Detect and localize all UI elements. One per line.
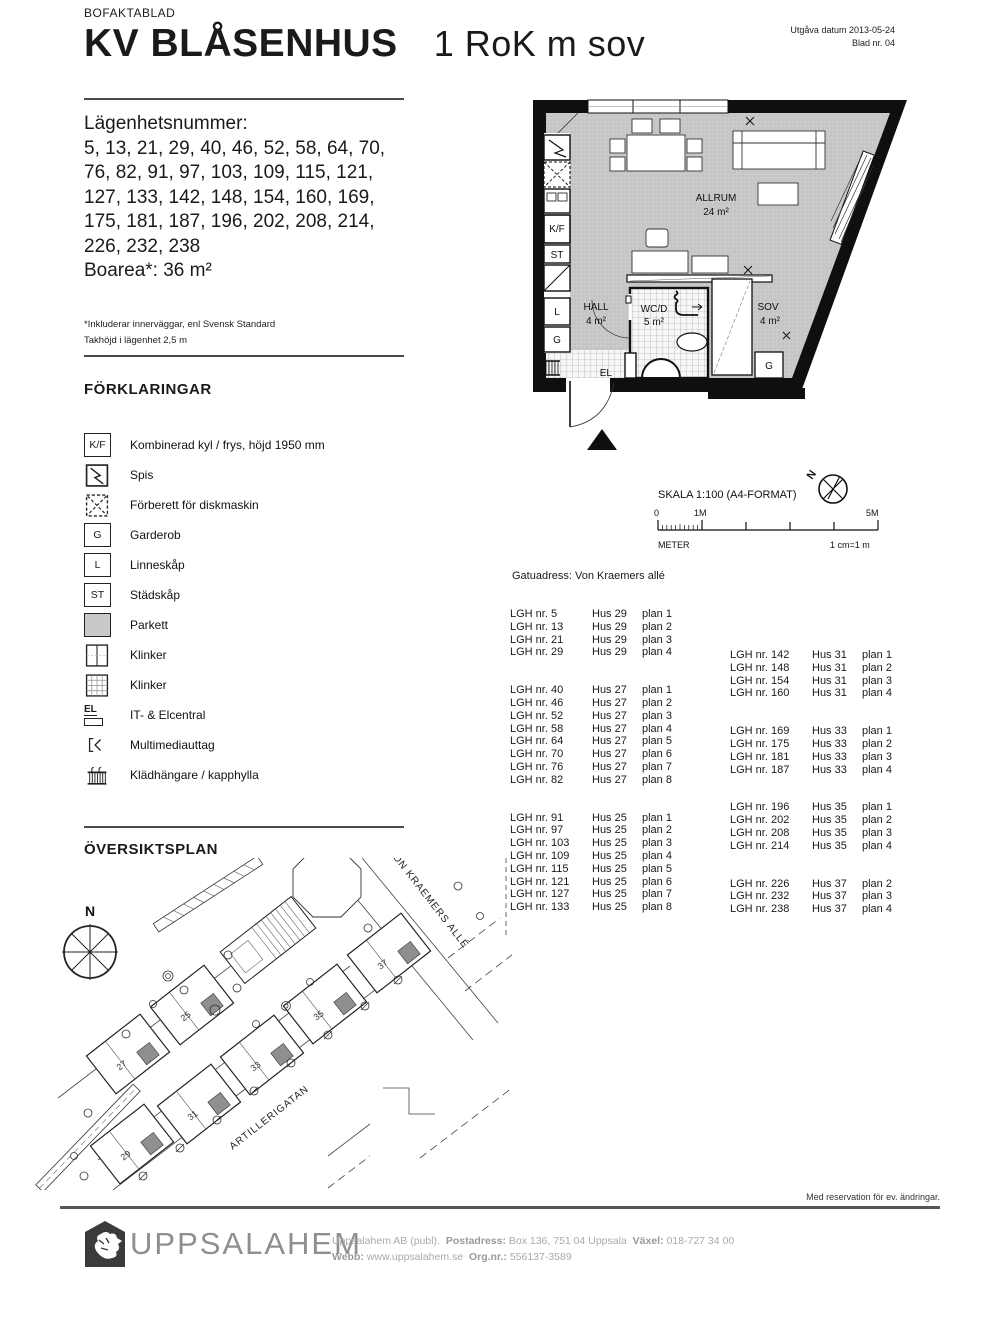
linen-closet-icon: L bbox=[84, 553, 130, 577]
unit-column-left: LGH nr. 5Hus 29plan 1LGH nr. 13Hus 29pla… bbox=[510, 608, 715, 941]
unit-row: LGH nr. 169Hus 33plan 1 bbox=[730, 725, 935, 738]
unit-row: LGH nr. 40Hus 27plan 1 bbox=[510, 684, 715, 697]
court-building bbox=[220, 897, 316, 984]
unit-lgh: LGH nr. 232 bbox=[730, 890, 812, 903]
unit-plan: plan 4 bbox=[642, 850, 702, 863]
unit-plan: plan 4 bbox=[862, 764, 922, 777]
unit-plan: plan 2 bbox=[862, 662, 922, 675]
unit-plan: plan 3 bbox=[642, 710, 702, 723]
unit-lgh: LGH nr. 154 bbox=[730, 675, 812, 688]
unit-plan: plan 8 bbox=[642, 774, 702, 787]
unit-hus: Hus 27 bbox=[592, 723, 642, 736]
unit-lgh: LGH nr. 21 bbox=[510, 634, 592, 647]
stove-symbol bbox=[544, 135, 570, 160]
unit-row: LGH nr. 142Hus 31plan 1 bbox=[730, 649, 935, 662]
unit-hus: Hus 33 bbox=[812, 738, 862, 751]
unit-hus: Hus 35 bbox=[812, 801, 862, 814]
doc-type-label: BOFAKTABLAD bbox=[84, 6, 175, 20]
unit-row: LGH nr. 187Hus 33plan 4 bbox=[730, 764, 935, 777]
unit-lgh: LGH nr. 196 bbox=[730, 801, 812, 814]
unit-plan: plan 1 bbox=[862, 725, 922, 738]
unit-plan: plan 3 bbox=[862, 827, 922, 840]
unit-hus: Hus 27 bbox=[592, 761, 642, 774]
unit-row: LGH nr. 109Hus 25plan 4 bbox=[510, 850, 715, 863]
unit-hus: Hus 33 bbox=[812, 751, 862, 764]
unit-plan: plan 6 bbox=[642, 748, 702, 761]
unit-row: LGH nr. 115Hus 25plan 5 bbox=[510, 863, 715, 876]
unit-row: LGH nr. 133Hus 25plan 8 bbox=[510, 901, 715, 914]
coat-hanger-icon bbox=[84, 763, 130, 788]
apartment-numbers-block: Lägenhetsnummer: 5, 13, 21, 29, 40, 46, … bbox=[84, 112, 414, 284]
cleaning-closet-icon: ST bbox=[84, 583, 130, 607]
street-address: Gatuadress: Von Kraemers allé bbox=[512, 570, 665, 582]
unit-lgh: LGH nr. 187 bbox=[730, 764, 812, 777]
unit-row: LGH nr. 238Hus 37plan 4 bbox=[730, 903, 935, 916]
unit-lgh: LGH nr. 148 bbox=[730, 662, 812, 675]
pergola-strip bbox=[153, 858, 262, 932]
title-row: KV BLÅSENHUS 1 RoK m sov bbox=[84, 22, 645, 66]
unit-lgh: LGH nr. 82 bbox=[510, 774, 592, 787]
sofa bbox=[733, 131, 825, 169]
unit-group: LGH nr. 142Hus 31plan 1LGH nr. 148Hus 31… bbox=[730, 649, 935, 700]
footnote-1: *Inkluderar innerväggar, enl Svensk Stan… bbox=[84, 317, 414, 333]
unit-hus: Hus 33 bbox=[812, 725, 862, 738]
svg-text:G: G bbox=[553, 335, 561, 346]
desk bbox=[632, 251, 688, 273]
unit-row: LGH nr. 103Hus 25plan 3 bbox=[510, 837, 715, 850]
unit-hus: Hus 25 bbox=[592, 850, 642, 863]
unit-lgh: LGH nr. 76 bbox=[510, 761, 592, 774]
unit-lgh: LGH nr. 208 bbox=[730, 827, 812, 840]
unit-row: LGH nr. 29Hus 29plan 4 bbox=[510, 646, 715, 659]
allrum-area: 24 m² bbox=[703, 207, 729, 218]
legend-row: Parkett bbox=[84, 610, 419, 640]
wc-area: 5 m² bbox=[644, 317, 665, 328]
unit-row: LGH nr. 196Hus 35plan 1 bbox=[730, 801, 935, 814]
unit-lgh: LGH nr. 52 bbox=[510, 710, 592, 723]
unit-hus: Hus 25 bbox=[592, 876, 642, 889]
wc-label: WC/D bbox=[641, 304, 668, 315]
building-37: 37 bbox=[347, 913, 430, 993]
unit-lgh: LGH nr. 109 bbox=[510, 850, 592, 863]
unit-lgh: LGH nr. 142 bbox=[730, 649, 812, 662]
ruler-labels: 0 1M 5M METER 1 cm=1 m bbox=[654, 508, 879, 550]
legend-row: Klinker bbox=[84, 640, 419, 670]
unit-hus: Hus 27 bbox=[592, 710, 642, 723]
ruler bbox=[658, 520, 878, 530]
svg-text:5M: 5M bbox=[866, 508, 879, 518]
unit-lgh: LGH nr. 175 bbox=[730, 738, 812, 751]
unit-row: LGH nr. 76Hus 27plan 7 bbox=[510, 761, 715, 774]
uppsalahem-logo-icon bbox=[84, 1220, 126, 1268]
stove-icon bbox=[84, 463, 130, 488]
unit-hus: Hus 35 bbox=[812, 840, 862, 853]
unit-plan: plan 1 bbox=[642, 684, 702, 697]
unit-lgh: LGH nr. 64 bbox=[510, 735, 592, 748]
unit-hus: Hus 37 bbox=[812, 890, 862, 903]
legend-list: K/F Kombinerad kyl / frys, höjd 1950 mm … bbox=[84, 430, 419, 790]
sov-area: 4 m² bbox=[760, 316, 781, 327]
sov-label: SOV bbox=[757, 302, 778, 313]
unit-plan: plan 4 bbox=[642, 723, 702, 736]
unit-row: LGH nr. 127Hus 25plan 7 bbox=[510, 888, 715, 901]
unit-plan: plan 3 bbox=[862, 890, 922, 903]
footer-divider bbox=[60, 1206, 940, 1209]
chair bbox=[610, 139, 625, 153]
compass-icon: N bbox=[805, 468, 847, 503]
unit-plan: plan 2 bbox=[642, 697, 702, 710]
entrance bbox=[566, 378, 617, 450]
shelf bbox=[692, 256, 728, 273]
unit-plan: plan 5 bbox=[642, 735, 702, 748]
unit-group: LGH nr. 40Hus 27plan 1LGH nr. 46Hus 27pl… bbox=[510, 684, 715, 786]
unit-group: LGH nr. 5Hus 29plan 1LGH nr. 13Hus 29pla… bbox=[510, 608, 715, 659]
unit-row: LGH nr. 82Hus 27plan 8 bbox=[510, 774, 715, 787]
issue-info: Utgåva datum 2013-05-24 Blad nr. 04 bbox=[650, 24, 895, 50]
unit-lgh: LGH nr. 5 bbox=[510, 608, 592, 621]
legend-row: L Linneskåp bbox=[84, 550, 419, 580]
unit-hus: Hus 27 bbox=[592, 748, 642, 761]
unit-plan: plan 1 bbox=[642, 812, 702, 825]
entrance-marker bbox=[587, 429, 617, 450]
unit-hus: Hus 33 bbox=[812, 764, 862, 777]
fridge-freezer-icon: K/F bbox=[84, 433, 130, 457]
unit-lgh: LGH nr. 70 bbox=[510, 748, 592, 761]
el-label: EL bbox=[600, 368, 613, 379]
page-title: KV BLÅSENHUS bbox=[84, 22, 398, 66]
unit-row: LGH nr. 64Hus 27plan 5 bbox=[510, 735, 715, 748]
unit-hus: Hus 27 bbox=[592, 684, 642, 697]
unit-lgh: LGH nr. 97 bbox=[510, 824, 592, 837]
unit-plan: plan 3 bbox=[642, 837, 702, 850]
unit-lgh: LGH nr. 46 bbox=[510, 697, 592, 710]
chair bbox=[687, 139, 702, 153]
unit-row: LGH nr. 181Hus 33plan 3 bbox=[730, 751, 935, 764]
unit-lgh: LGH nr. 29 bbox=[510, 646, 592, 659]
unit-table: LGH nr. 5Hus 29plan 1LGH nr. 13Hus 29pla… bbox=[510, 608, 935, 941]
washbasin bbox=[677, 333, 707, 351]
unit-row: LGH nr. 21Hus 29plan 3 bbox=[510, 634, 715, 647]
unit-row: LGH nr. 154Hus 31plan 3 bbox=[730, 675, 935, 688]
unit-plan: plan 5 bbox=[642, 863, 702, 876]
unit-plan: plan 6 bbox=[642, 876, 702, 889]
svg-text:1M: 1M bbox=[694, 508, 707, 518]
ratio-label: 1 cm=1 m bbox=[830, 540, 870, 550]
unit-lgh: LGH nr. 214 bbox=[730, 840, 812, 853]
unit-lgh: LGH nr. 226 bbox=[730, 878, 812, 891]
legend-row: Klädhängare / kapphylla bbox=[84, 760, 419, 790]
unit-hus: Hus 25 bbox=[592, 888, 642, 901]
el-central-icon: EL bbox=[84, 704, 130, 726]
unit-row: LGH nr. 46Hus 27plan 2 bbox=[510, 697, 715, 710]
unit-lgh: LGH nr. 103 bbox=[510, 837, 592, 850]
unit-plan: plan 4 bbox=[862, 840, 922, 853]
scale-title: SKALA 1:100 (A4-FORMAT) bbox=[658, 489, 797, 501]
unit-plan: plan 3 bbox=[642, 634, 702, 647]
unit-hus: Hus 29 bbox=[592, 621, 642, 634]
siteplan-compass-icon: N bbox=[62, 903, 118, 980]
unit-hus: Hus 35 bbox=[812, 814, 862, 827]
unit-lgh: LGH nr. 58 bbox=[510, 723, 592, 736]
unit-hus: Hus 31 bbox=[812, 675, 862, 688]
unit-lgh: LGH nr. 160 bbox=[730, 687, 812, 700]
hall-area: 4 m² bbox=[586, 316, 607, 327]
unit-group: LGH nr. 226Hus 37plan 2LGH nr. 232Hus 37… bbox=[730, 878, 935, 916]
building-27: 27 bbox=[86, 1014, 169, 1094]
chair bbox=[687, 157, 702, 171]
unit-lgh: LGH nr. 202 bbox=[730, 814, 812, 827]
unit-hus: Hus 29 bbox=[592, 608, 642, 621]
legend-row: Klinker bbox=[84, 670, 419, 700]
unit-hus: Hus 31 bbox=[812, 662, 862, 675]
dining-table bbox=[627, 135, 685, 171]
divider bbox=[84, 355, 404, 357]
wardrobe-icon: G bbox=[84, 523, 130, 547]
legend-row: EL IT- & Elcentral bbox=[84, 700, 419, 730]
footer-info: Uppsalahem AB (publ). Postadress: Box 13… bbox=[332, 1233, 734, 1265]
legend-row: K/F Kombinerad kyl / frys, höjd 1950 mm bbox=[84, 430, 419, 460]
unit-row: LGH nr. 214Hus 35plan 4 bbox=[730, 840, 935, 853]
unit-row: LGH nr. 208Hus 35plan 3 bbox=[730, 827, 935, 840]
unit-plan: plan 1 bbox=[862, 649, 922, 662]
unit-lgh: LGH nr. 238 bbox=[730, 903, 812, 916]
entry-tile-floor bbox=[546, 350, 630, 378]
siteplan-title: ÖVERSIKTSPLAN bbox=[84, 841, 218, 858]
unit-hus: Hus 37 bbox=[812, 878, 862, 891]
unit-row: LGH nr. 160Hus 31plan 4 bbox=[730, 687, 935, 700]
brand-name: UPPSALAHEM bbox=[130, 1226, 362, 1262]
unit-hus: Hus 31 bbox=[812, 687, 862, 700]
chair bbox=[660, 119, 680, 133]
unit-lgh: LGH nr. 181 bbox=[730, 751, 812, 764]
svg-text:G: G bbox=[765, 361, 773, 372]
unit-hus: Hus 27 bbox=[592, 697, 642, 710]
unit-lgh: LGH nr. 121 bbox=[510, 876, 592, 889]
unit-hus: Hus 29 bbox=[592, 634, 642, 647]
svg-text:N: N bbox=[805, 468, 819, 481]
svg-text:L: L bbox=[554, 307, 560, 318]
unit-hus: Hus 25 bbox=[592, 863, 642, 876]
unit-hus: Hus 25 bbox=[592, 812, 642, 825]
unit-group: LGH nr. 169Hus 33plan 1LGH nr. 175Hus 33… bbox=[730, 725, 935, 776]
apartment-numbers: 5, 13, 21, 29, 40, 46, 52, 58, 64, 70, 7… bbox=[84, 137, 414, 260]
unit-lgh: LGH nr. 40 bbox=[510, 684, 592, 697]
unit-hus: Hus 27 bbox=[592, 774, 642, 787]
unit-lgh: LGH nr. 13 bbox=[510, 621, 592, 634]
top-window bbox=[588, 100, 728, 113]
wall-step bbox=[708, 388, 805, 399]
unit-hus: Hus 37 bbox=[812, 903, 862, 916]
unit-row: LGH nr. 13Hus 29plan 2 bbox=[510, 621, 715, 634]
unit-lgh: LGH nr. 133 bbox=[510, 901, 592, 914]
octagon-feature bbox=[293, 858, 361, 917]
unit-plan: plan 2 bbox=[642, 824, 702, 837]
legend-row: ST Städskåp bbox=[84, 580, 419, 610]
kitchen-strip bbox=[544, 133, 570, 353]
legend-row: Förberett för diskmaskin bbox=[84, 490, 419, 520]
unit-column-right: LGH nr. 142Hus 31plan 1LGH nr. 148Hus 31… bbox=[730, 649, 935, 941]
unit-group: LGH nr. 196Hus 35plan 1LGH nr. 202Hus 35… bbox=[730, 801, 935, 852]
unit-row: LGH nr. 58Hus 27plan 4 bbox=[510, 723, 715, 736]
unit-row: LGH nr. 5Hus 29plan 1 bbox=[510, 608, 715, 621]
hall-label: HALL bbox=[583, 302, 608, 313]
legend-row: Multimediauttag bbox=[84, 730, 419, 760]
reservation-note: Med reservation för ev. ändringar. bbox=[600, 1192, 940, 1202]
unit-row: LGH nr. 148Hus 31plan 2 bbox=[730, 662, 935, 675]
footnotes: *Inkluderar innerväggar, enl Svensk Stan… bbox=[84, 317, 414, 349]
unit-plan: plan 4 bbox=[862, 687, 922, 700]
building-33: 33 bbox=[220, 1015, 303, 1095]
footnote-2: Takhöjd i lägenhet 2,5 m bbox=[84, 333, 414, 349]
unit-plan: plan 7 bbox=[642, 888, 702, 901]
unit-row: LGH nr. 70Hus 27plan 6 bbox=[510, 748, 715, 761]
el-cabinet bbox=[625, 353, 636, 378]
unit-hus: Hus 25 bbox=[592, 837, 642, 850]
tile-split-icon bbox=[84, 643, 130, 668]
unit-plan: plan 4 bbox=[862, 903, 922, 916]
chair bbox=[632, 119, 652, 133]
unit-plan: plan 2 bbox=[862, 878, 922, 891]
unit-hus: Hus 29 bbox=[592, 646, 642, 659]
legend-title: FÖRKLARINGAR bbox=[84, 381, 212, 398]
unit-row: LGH nr. 175Hus 33plan 2 bbox=[730, 738, 935, 751]
unit-plan: plan 1 bbox=[862, 801, 922, 814]
siteplan-north-label: N bbox=[85, 903, 95, 919]
issue-date: Utgåva datum 2013-05-24 bbox=[650, 24, 895, 37]
bofaktablad-page: BOFAKTABLAD KV BLÅSENHUS 1 RoK m sov Utg… bbox=[0, 0, 1000, 1333]
unit-hus: Hus 25 bbox=[592, 901, 642, 914]
unit-lgh: LGH nr. 115 bbox=[510, 863, 592, 876]
svg-text:K/F: K/F bbox=[549, 224, 565, 235]
unit-row: LGH nr. 226Hus 37plan 2 bbox=[730, 878, 935, 891]
coffee-table bbox=[758, 183, 798, 205]
unit-hus: Hus 31 bbox=[812, 649, 862, 662]
footer-web-url: www.uppsalahem.se bbox=[367, 1251, 463, 1263]
unit-row: LGH nr. 52Hus 27plan 3 bbox=[510, 710, 715, 723]
unit-group: LGH nr. 91Hus 25plan 1LGH nr. 97Hus 25pl… bbox=[510, 812, 715, 914]
svg-text:0: 0 bbox=[654, 508, 659, 518]
unit-plan: plan 3 bbox=[862, 675, 922, 688]
unit-row: LGH nr. 121Hus 25plan 6 bbox=[510, 876, 715, 889]
legend-row: Spis bbox=[84, 460, 419, 490]
unit-hus: Hus 27 bbox=[592, 735, 642, 748]
unit-plan: plan 7 bbox=[642, 761, 702, 774]
page-subtitle: 1 RoK m sov bbox=[434, 23, 646, 65]
unit-plan: plan 4 bbox=[642, 646, 702, 659]
unit-lgh: LGH nr. 127 bbox=[510, 888, 592, 901]
dishwasher-icon bbox=[84, 493, 130, 518]
boarea: Boarea*: 36 m² bbox=[84, 259, 414, 284]
divider bbox=[84, 826, 404, 828]
unit-plan: plan 2 bbox=[642, 621, 702, 634]
multimedia-outlet-icon bbox=[84, 734, 130, 756]
street-label-artillerigatan: ARTILLERIGATAN bbox=[228, 1084, 311, 1153]
divider bbox=[84, 98, 404, 100]
unit-plan: plan 1 bbox=[642, 608, 702, 621]
unit-plan: plan 8 bbox=[642, 901, 702, 914]
unit-row: LGH nr. 232Hus 37plan 3 bbox=[730, 890, 935, 903]
unit-plan: plan 2 bbox=[862, 738, 922, 751]
legend-row: G Garderob bbox=[84, 520, 419, 550]
chair bbox=[610, 157, 625, 171]
unit-row: LGH nr. 202Hus 35plan 2 bbox=[730, 814, 935, 827]
building-31: 31 bbox=[157, 1064, 240, 1144]
unit-row: LGH nr. 91Hus 25plan 1 bbox=[510, 812, 715, 825]
unit-hus: Hus 25 bbox=[592, 824, 642, 837]
apartment-numbers-label: Lägenhetsnummer: bbox=[84, 112, 414, 137]
parquet-swatch-icon bbox=[84, 613, 130, 637]
unit-lgh: LGH nr. 169 bbox=[730, 725, 812, 738]
unit-plan: plan 3 bbox=[862, 751, 922, 764]
sheet-number: Blad nr. 04 bbox=[650, 37, 895, 50]
unit-hus: Hus 35 bbox=[812, 827, 862, 840]
unit-lgh: LGH nr. 91 bbox=[510, 812, 592, 825]
desk-chair bbox=[646, 229, 668, 247]
meter-label: METER bbox=[658, 540, 690, 550]
svg-text:ST: ST bbox=[551, 250, 564, 261]
tile-grid-icon bbox=[84, 673, 130, 698]
allrum-label: ALLRUM bbox=[696, 193, 737, 204]
scale-bar: SKALA 1:100 (A4-FORMAT) 0 1M 5M METER 1 … bbox=[640, 462, 940, 562]
unit-plan: plan 2 bbox=[862, 814, 922, 827]
floor-plan: K/F ST L G bbox=[530, 95, 910, 455]
site-plan: N 2 bbox=[28, 858, 512, 1190]
unit-row: LGH nr. 97Hus 25plan 2 bbox=[510, 824, 715, 837]
